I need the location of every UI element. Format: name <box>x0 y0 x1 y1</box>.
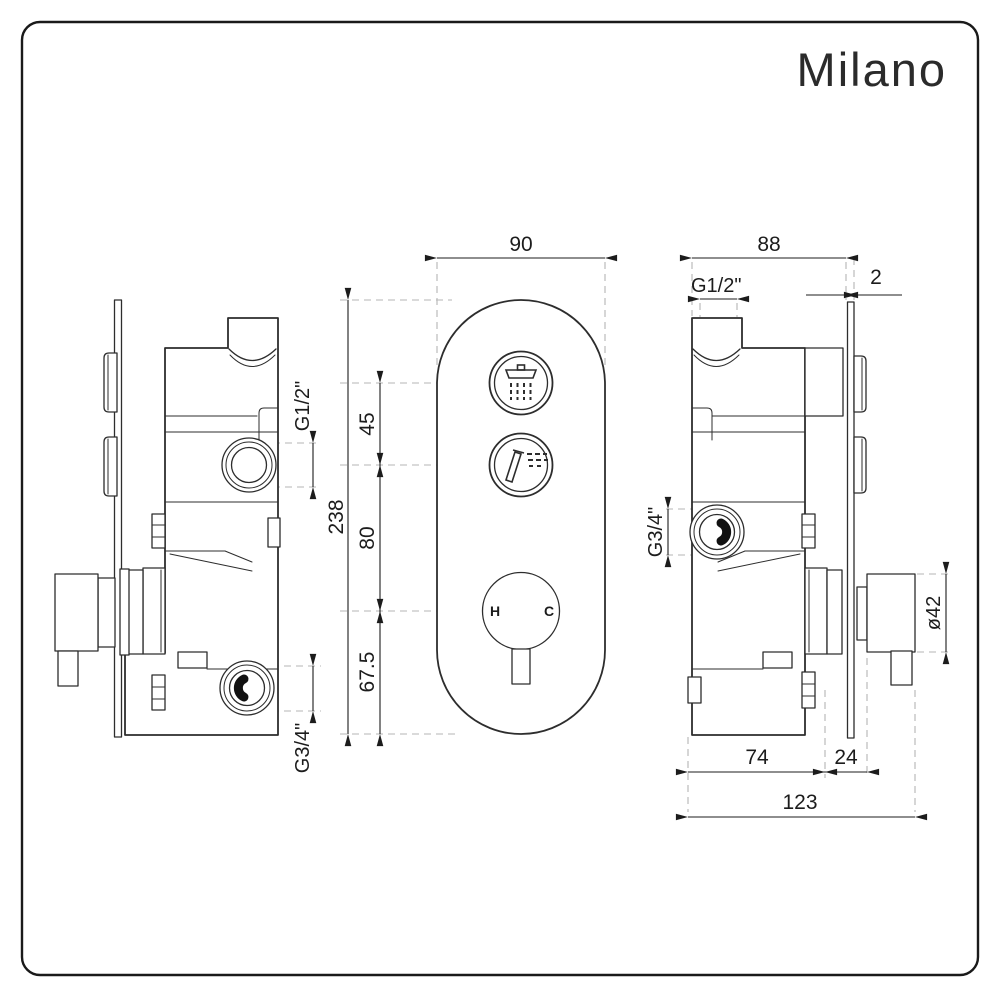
dim-label-2: 2 <box>870 266 882 289</box>
dim-label-74: 74 <box>745 746 769 769</box>
dim-label-45: 45 <box>356 412 379 435</box>
dim-label-g12: G1/2" <box>691 275 741 297</box>
dim-label-knob-diameter: ø42 <box>923 596 945 630</box>
inlet-cap <box>104 437 117 496</box>
g34-port <box>690 505 744 559</box>
shower-valve-dimension-diagram: Milano <box>0 0 1000 1000</box>
g34-port <box>220 661 274 715</box>
dim-label-g34: G3/4" <box>292 723 314 773</box>
knob-profile <box>805 568 915 685</box>
dim-label-80: 80 <box>356 526 379 549</box>
hex-bolt <box>152 514 165 548</box>
hot-label: H <box>490 603 500 619</box>
inlet-cap <box>854 356 866 412</box>
wall-plate-edge <box>848 302 855 738</box>
right-side-view: 88 2 G1/2" G3/4" ø42 74 24 123 <box>645 233 952 817</box>
brand-logo: Milano <box>797 43 947 96</box>
body-block <box>763 652 792 668</box>
body-block <box>178 652 207 668</box>
g12-port <box>222 438 276 492</box>
dim-label-height: 238 <box>325 499 348 534</box>
dim-label-67-5: 67.5 <box>356 652 379 693</box>
mounting-boss <box>805 348 843 416</box>
cold-label: C <box>544 603 554 619</box>
hex-bolt <box>802 672 815 708</box>
front-view: H C 90 238 45 80 67.5 <box>325 233 605 734</box>
inlet-cap <box>854 437 866 493</box>
dim-label-88: 88 <box>757 233 780 256</box>
left-side-view: G1/2" G3/4" <box>55 300 321 773</box>
body-block <box>268 518 280 547</box>
dim-label-g12: G1/2" <box>292 381 314 431</box>
hex-bolt <box>802 514 815 548</box>
body-block <box>688 677 701 703</box>
dim-label-g34: G3/4" <box>645 507 667 557</box>
hex-bolt <box>152 675 165 710</box>
dim-label-24: 24 <box>834 746 858 769</box>
dial-handle <box>512 649 530 684</box>
dim-label-width: 90 <box>509 233 532 256</box>
inlet-cap <box>104 353 117 412</box>
dim-label-123: 123 <box>782 791 817 814</box>
technical-drawing-page: Milano <box>0 0 1000 1000</box>
